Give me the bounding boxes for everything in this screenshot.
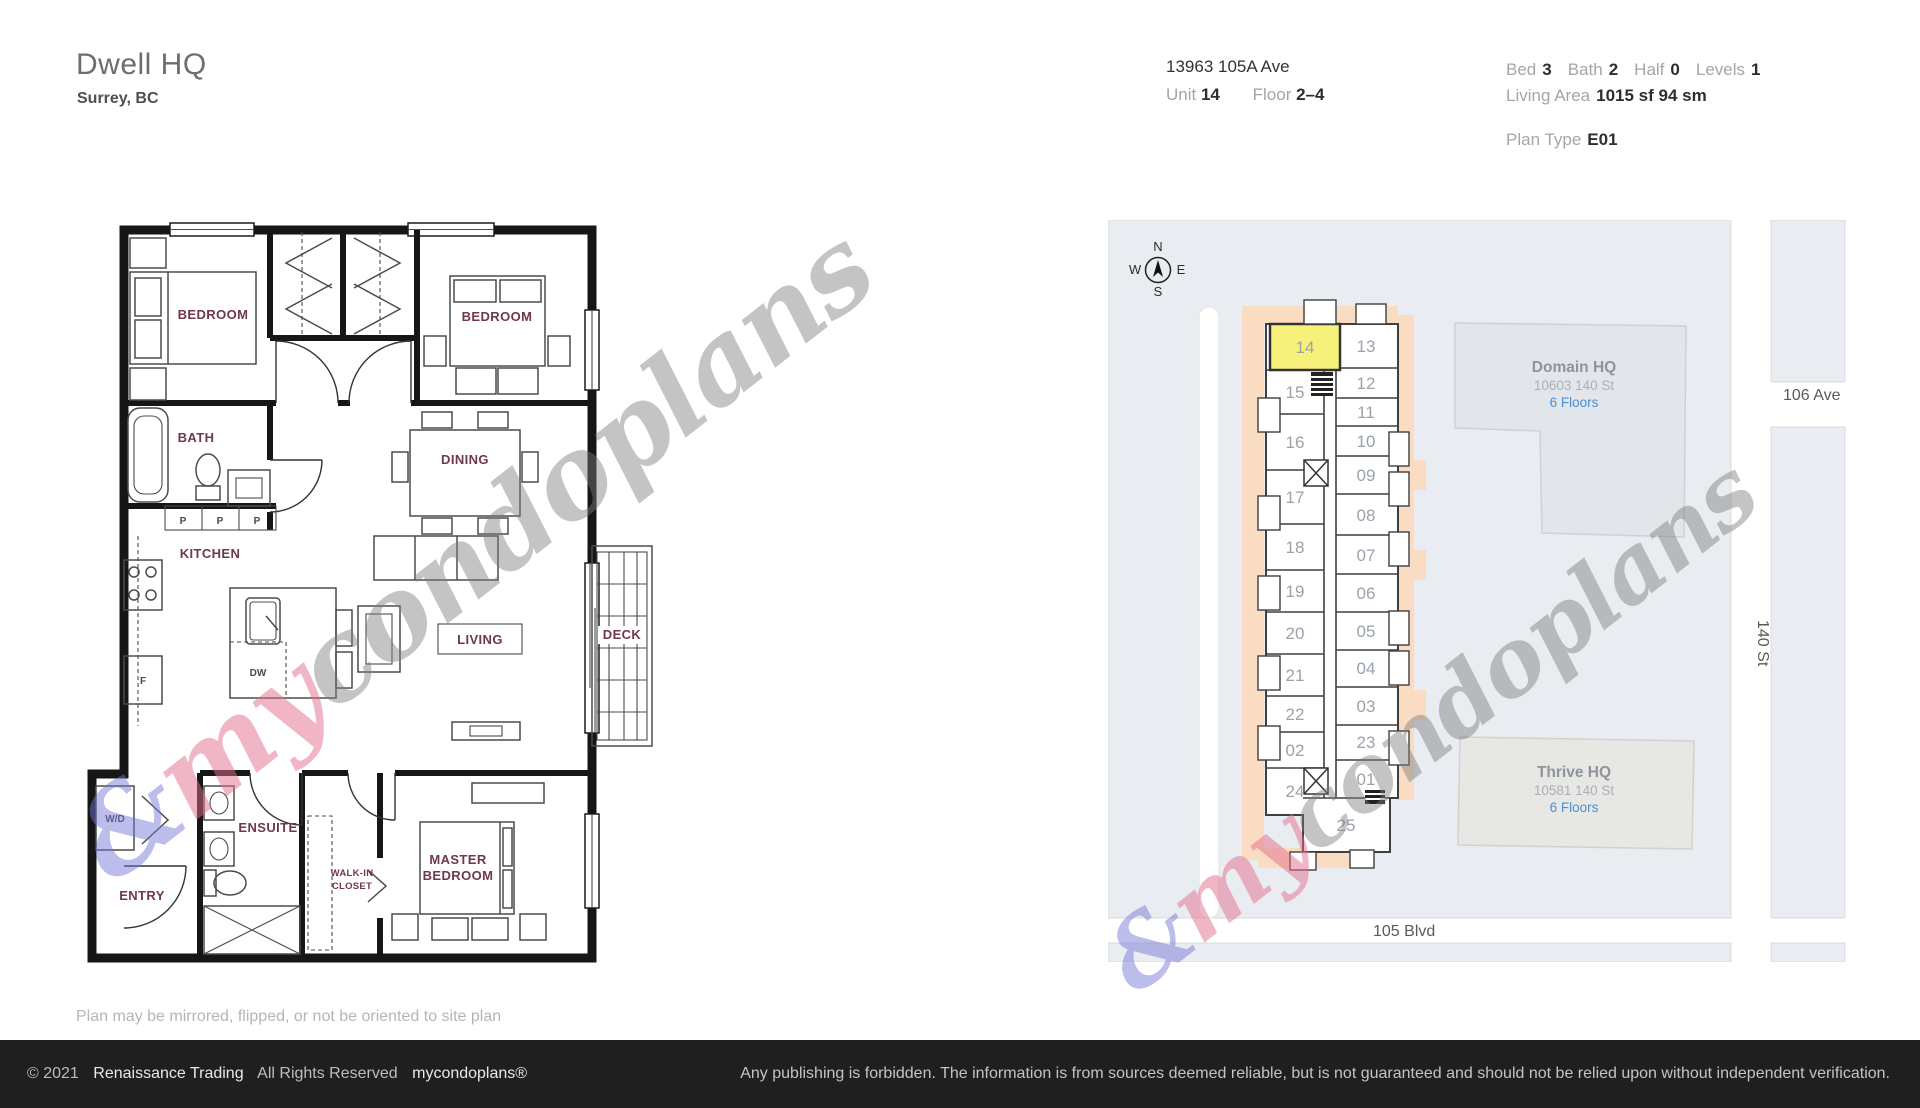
- room-label-living: LIVING: [457, 632, 503, 647]
- levels-label: Levels: [1696, 60, 1745, 79]
- site-unit-23[interactable]: 02: [1286, 741, 1305, 760]
- street-140-st: 140 St: [1754, 620, 1771, 667]
- floorplan-svg: P P P F DW: [80, 218, 660, 968]
- pantry-label: P: [254, 516, 261, 527]
- washer-dryer-label: W/D: [105, 814, 124, 825]
- compass-e: E: [1177, 262, 1186, 277]
- compass-w: W: [1129, 262, 1142, 277]
- site-block-south: [1108, 943, 1731, 962]
- elevator-icon: [1304, 460, 1328, 486]
- site-unit-02[interactable]: 23: [1357, 733, 1376, 752]
- footer-notice: Any publishing is forbidden. The informa…: [740, 1065, 1890, 1083]
- room-label-ensuite: ENSUITE: [238, 820, 297, 835]
- room-label-kitchen: KITCHEN: [180, 546, 241, 561]
- site-unit-12[interactable]: 12: [1357, 374, 1376, 393]
- site-unit-10[interactable]: 10: [1357, 432, 1376, 451]
- site-unit-17[interactable]: 17: [1286, 488, 1305, 507]
- floor-label: Floor: [1253, 85, 1292, 104]
- room-label-bedroom2: BEDROOM: [462, 309, 533, 324]
- site-unit-09[interactable]: 09: [1357, 466, 1376, 485]
- street-106-ave: 106 Ave: [1783, 387, 1841, 404]
- building-name: Thrive HQ: [1537, 764, 1611, 781]
- bed-value: 3: [1542, 60, 1551, 79]
- footer-brand: mycondoplans®: [412, 1065, 527, 1082]
- pantry-label: P: [217, 516, 224, 527]
- living-area-label: Living Area: [1506, 86, 1590, 105]
- half-label: Half: [1634, 60, 1664, 79]
- building-address: 10603 140 St: [1534, 378, 1615, 393]
- room-label-master-1: MASTER: [429, 852, 486, 867]
- bath-value: 2: [1609, 60, 1618, 79]
- site-unit-16[interactable]: 16: [1286, 433, 1305, 452]
- site-unit-15[interactable]: 15: [1286, 383, 1305, 402]
- details-block: Bed3Bath2Half0Levels1 Living Area1015 sf…: [1506, 57, 1776, 153]
- street-105-blvd: 105 Blvd: [1373, 923, 1435, 940]
- room-label-bedroom1: BEDROOM: [178, 307, 249, 322]
- street-address: 13963 105A Ave: [1166, 57, 1324, 77]
- site-unit-21[interactable]: 21: [1286, 666, 1305, 685]
- page-subtitle: Surrey, BC: [77, 90, 159, 108]
- footer-copyright: © 2021 Renaissance Trading All Rights Re…: [27, 1065, 537, 1083]
- stairwell-icon: [1365, 790, 1385, 804]
- unit-value: 14: [1201, 85, 1220, 104]
- room-label-deck: DECK: [603, 627, 642, 642]
- half-value: 0: [1670, 60, 1679, 79]
- site-unit-25[interactable]: 25: [1337, 816, 1356, 835]
- unit-floor-line: Unit 14 Floor 2–4: [1166, 85, 1324, 105]
- site-unit-04[interactable]: 04: [1357, 659, 1376, 678]
- site-unit-18[interactable]: 18: [1286, 538, 1305, 557]
- details-line1: Bed3Bath2Half0Levels1: [1506, 57, 1776, 83]
- fridge-label: F: [140, 676, 146, 687]
- room-label-entry: ENTRY: [119, 888, 165, 903]
- footer: © 2021 Renaissance Trading All Rights Re…: [0, 1040, 1920, 1108]
- room-label-bath: BATH: [178, 430, 215, 445]
- footer-year: © 2021: [27, 1065, 79, 1082]
- site-block-ne: [1771, 220, 1845, 382]
- site-unit-08[interactable]: 08: [1357, 506, 1376, 525]
- site-unit-03[interactable]: 03: [1357, 697, 1376, 716]
- building-floors-link[interactable]: 6 Floors: [1550, 395, 1599, 410]
- building-name: Domain HQ: [1532, 359, 1616, 376]
- levels-value: 1: [1751, 60, 1760, 79]
- pantry-label: P: [180, 516, 187, 527]
- compass-n: N: [1153, 239, 1162, 254]
- site-unit-05[interactable]: 05: [1357, 622, 1376, 641]
- plan-disclaimer: Plan may be mirrored, flipped, or not be…: [76, 1008, 501, 1026]
- living-area-value: 1015 sf 94 sm: [1596, 86, 1707, 105]
- footer-rights: All Rights Reserved: [257, 1065, 398, 1082]
- driveway: [1199, 307, 1219, 918]
- site-unit-07[interactable]: 07: [1357, 546, 1376, 565]
- room-label-dining: DINING: [441, 452, 489, 467]
- building-floors-link[interactable]: 6 Floors: [1550, 800, 1599, 815]
- site-unit-11[interactable]: 11: [1357, 403, 1375, 422]
- details-line2: Living Area1015 sf 94 sm: [1506, 83, 1776, 109]
- bath-label: Bath: [1568, 60, 1603, 79]
- bed-label: Bed: [1506, 60, 1536, 79]
- site-unit-01[interactable]: 01: [1357, 770, 1376, 789]
- address-block: 13963 105A Ave Unit 14 Floor 2–4: [1166, 57, 1324, 105]
- details-line3: Plan TypeE01: [1506, 127, 1776, 153]
- site-block-se: [1771, 943, 1845, 962]
- compass-s: S: [1154, 284, 1163, 299]
- room-label-walkin-2: CLOSET: [332, 881, 372, 892]
- plan-type-label: Plan Type: [1506, 130, 1581, 149]
- site-unit-24[interactable]: 24: [1286, 782, 1305, 801]
- site-unit-13[interactable]: 13: [1357, 337, 1376, 356]
- site-unit-14[interactable]: 14: [1296, 338, 1315, 357]
- site-unit-06[interactable]: 06: [1357, 584, 1376, 603]
- siteplan-svg: N S W E Domain HQ 10603 140 St 6 Floors …: [1108, 220, 1848, 962]
- footer-company: Renaissance Trading: [93, 1065, 243, 1082]
- site-unit-22[interactable]: 22: [1286, 705, 1305, 724]
- site-unit-20[interactable]: 20: [1286, 624, 1305, 643]
- elevator-icon: [1304, 768, 1328, 794]
- stairwell-icon: [1311, 372, 1333, 396]
- unit-label: Unit: [1166, 85, 1196, 104]
- room-label-walkin-1: WALK-IN: [331, 868, 374, 879]
- dishwasher-label: DW: [250, 668, 267, 679]
- site-block-e: [1771, 427, 1845, 918]
- plan-type-value: E01: [1587, 130, 1617, 149]
- floor-value: 2–4: [1296, 85, 1324, 104]
- page-title: Dwell HQ: [76, 48, 207, 82]
- building-address: 10581 140 St: [1534, 783, 1615, 798]
- room-label-master-2: BEDROOM: [423, 868, 494, 883]
- site-unit-19[interactable]: 19: [1286, 582, 1305, 601]
